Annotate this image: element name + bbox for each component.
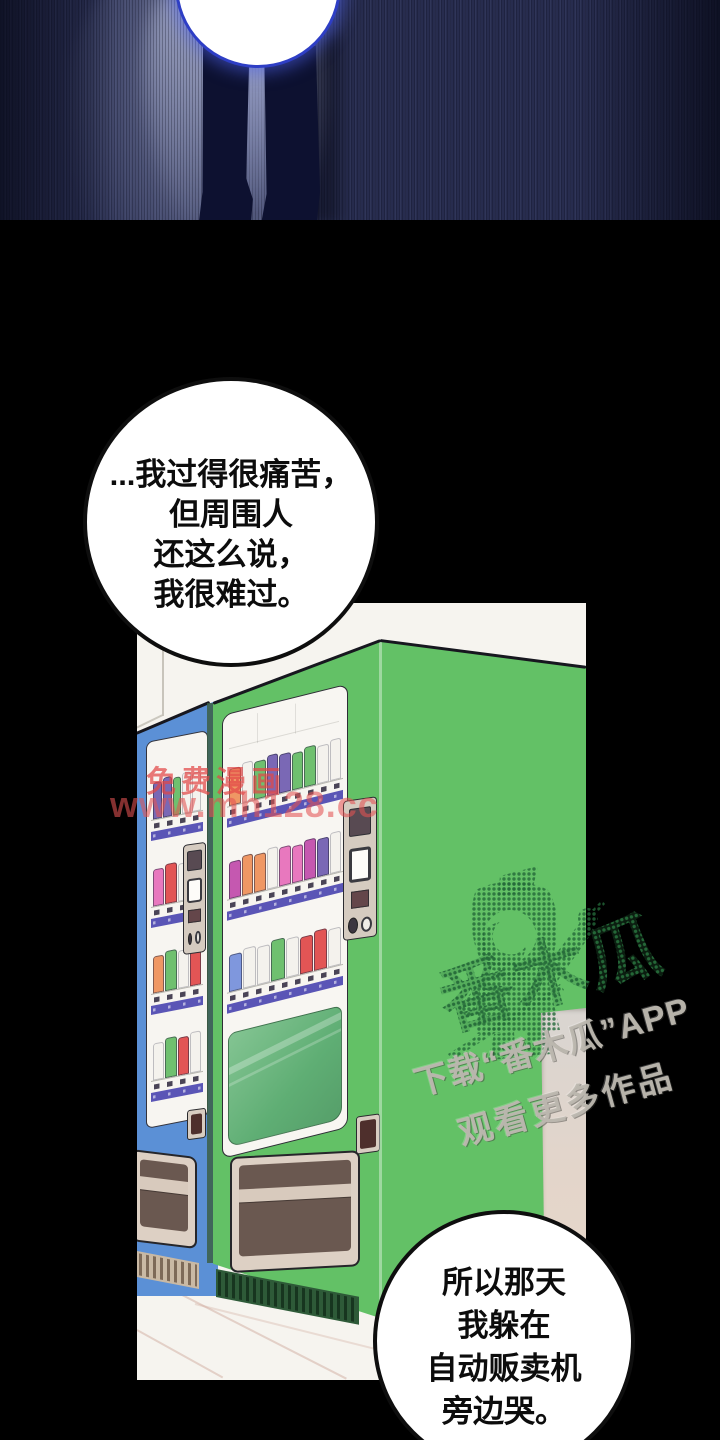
green-vending-machine-window <box>222 684 348 1159</box>
window-back-line <box>257 713 258 743</box>
speech-line: 还这么说， <box>110 535 353 575</box>
panel-vignette <box>0 0 720 220</box>
blue-machine-dispenser-tray <box>137 1149 197 1249</box>
speech-line: 我躲在 <box>427 1304 582 1347</box>
speech-line: 自动贩卖机 <box>427 1347 582 1390</box>
green-machine-card-reader <box>356 1113 380 1154</box>
selection-button <box>187 877 202 903</box>
shelf <box>227 831 343 921</box>
blue-machine-control-panel <box>183 842 206 955</box>
speech-line: 旁边哭。 <box>427 1390 582 1433</box>
green-machine-lower-glass <box>228 1005 342 1147</box>
bill-slot <box>188 908 201 923</box>
floor-line <box>137 1329 223 1378</box>
speech-line: 但周围人 <box>110 495 353 535</box>
machine-corner-highlight <box>379 641 382 1317</box>
panel-night-scene <box>0 0 720 220</box>
speech-line: 所以那天 <box>427 1261 582 1304</box>
watermark-red-url: www.mh128.cc <box>110 787 379 823</box>
coin-display <box>187 849 202 871</box>
green-machine-dispenser-tray <box>230 1150 360 1273</box>
shelf <box>151 944 203 1015</box>
speech-line: 我很难过。 <box>110 575 353 615</box>
comic-page: 免费漫画 www.mh128.cc 番木瓜 下载“番木瓜”APP 观看更多作品 <box>0 0 720 1440</box>
shelf <box>151 1031 203 1102</box>
coin-slots <box>348 915 372 934</box>
speech-bubble-1: ...我过得很痛苦， 但周围人 还这么说， 我很难过。 <box>83 377 379 667</box>
blue-machine-card-reader <box>187 1108 206 1141</box>
selection-button <box>349 846 371 883</box>
bill-slot <box>351 889 369 909</box>
speech-line: ...我过得很痛苦， <box>110 455 353 495</box>
window-back-line <box>295 704 296 734</box>
coin-slots <box>188 930 201 945</box>
shelf <box>227 924 343 1014</box>
